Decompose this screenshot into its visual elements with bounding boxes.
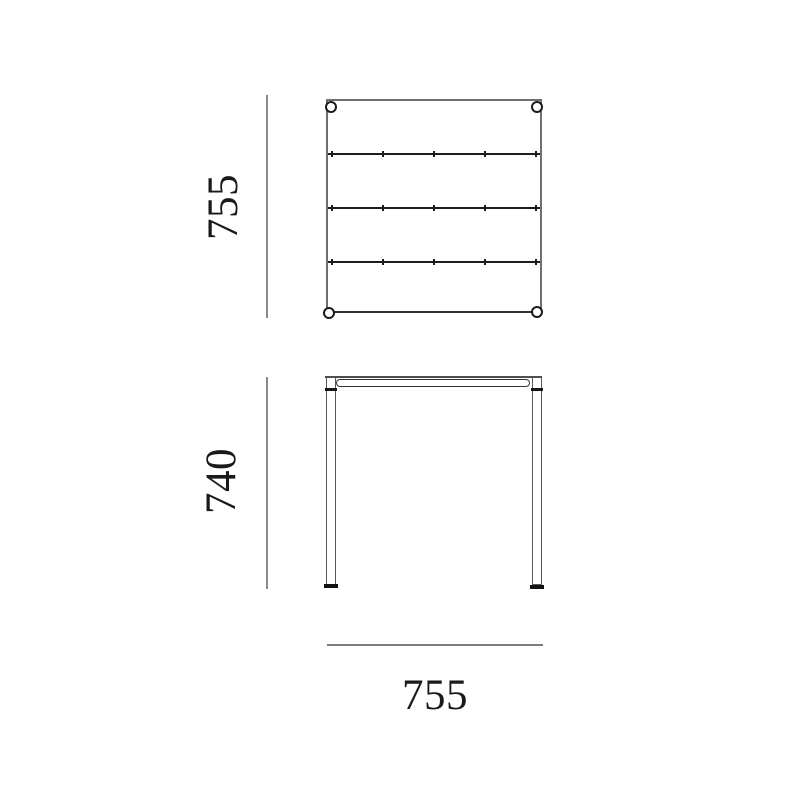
corner-fitting-icon [325, 101, 337, 113]
connector-tick [433, 205, 435, 211]
corner-fitting-icon [531, 306, 543, 318]
top-view-height-dimension-label: 755 [202, 147, 246, 267]
dimension-diagram: 755 740 [0, 0, 800, 800]
front-view-top-line [325, 376, 542, 378]
connector-tick [331, 259, 333, 265]
slat-divider [328, 207, 540, 209]
leg-foot-left [324, 584, 338, 588]
slat-divider [328, 153, 540, 155]
corner-fitting-icon [323, 307, 335, 319]
connector-tick [535, 151, 537, 157]
front-view-height-dimension-line [266, 377, 268, 589]
connector-tick [433, 151, 435, 157]
corner-fitting-icon [531, 101, 543, 113]
connector-tick [535, 259, 537, 265]
connector-tick [484, 151, 486, 157]
front-view-width-dimension-label: 755 [375, 674, 495, 718]
leg-joint-left [325, 388, 337, 391]
front-view-height-dimension-label: 740 [200, 421, 244, 541]
connector-tick [382, 151, 384, 157]
connector-tick [382, 205, 384, 211]
top-view-height-dimension-line [266, 95, 268, 318]
top-view-tabletop [326, 99, 542, 313]
connector-tick [433, 259, 435, 265]
slat-divider [328, 261, 540, 263]
front-view-width-dimension-line [327, 644, 543, 646]
table-leg-right [532, 377, 542, 585]
table-leg-left [326, 377, 336, 585]
connector-tick [484, 205, 486, 211]
connector-tick [331, 151, 333, 157]
connector-tick [382, 259, 384, 265]
front-view-tabletop-edge [336, 379, 530, 387]
connector-tick [535, 205, 537, 211]
leg-joint-right [531, 388, 543, 391]
leg-foot-right [530, 585, 544, 589]
connector-tick [484, 259, 486, 265]
connector-tick [331, 205, 333, 211]
